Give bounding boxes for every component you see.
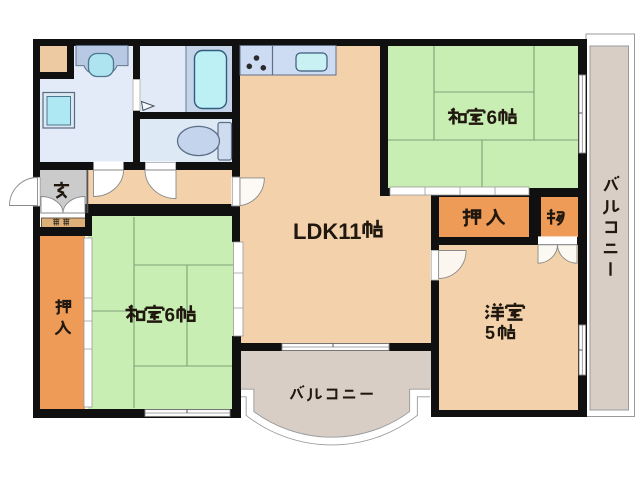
svg-text:6: 6: [487, 108, 498, 129]
svg-text:6: 6: [165, 306, 176, 327]
svg-text:LDK11: LDK11: [293, 219, 361, 244]
svg-text:5: 5: [485, 323, 495, 343]
